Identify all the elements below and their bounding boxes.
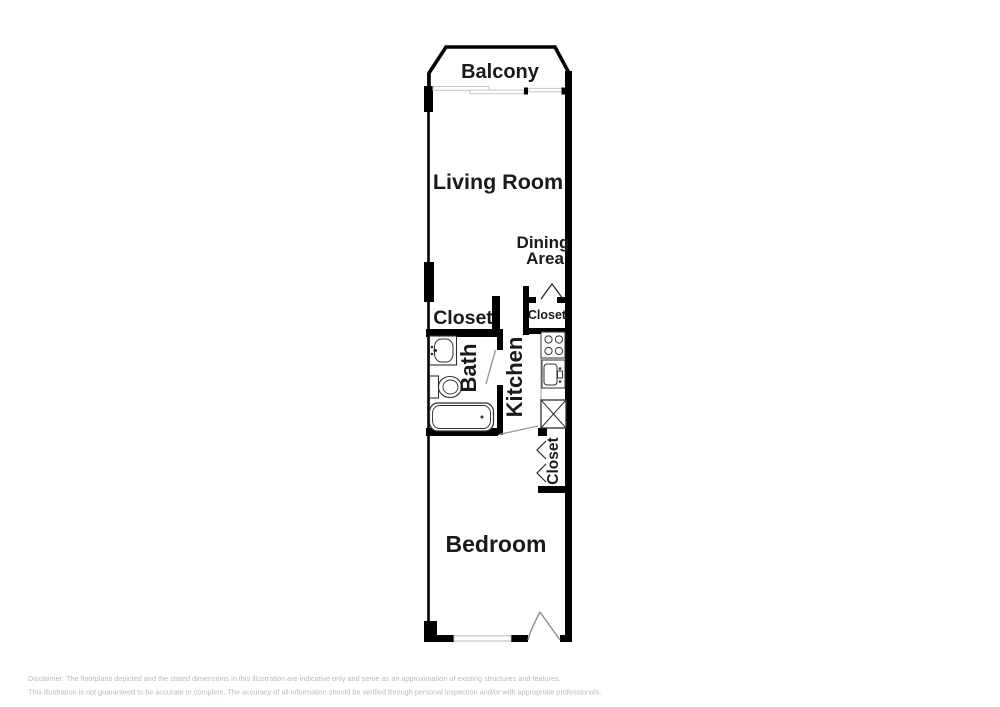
closet-upper-right-label: Closet [528, 308, 567, 322]
right-wall [565, 71, 572, 642]
bottom-wall-mid [511, 635, 528, 642]
vanity-sink [430, 336, 457, 365]
windows [454, 636, 511, 641]
kitchen-door-post [538, 428, 547, 436]
kitchen-label: Kitchen [502, 337, 527, 418]
room-labels: Balcony Living Room Dining Area Closet C… [433, 61, 570, 557]
closet-lower-right-label: Closet [545, 437, 562, 484]
upper-closet-swing-door [541, 284, 563, 299]
closet-upper-left-label: Closet [433, 307, 493, 329]
bedroom-entry-door-arc [528, 612, 540, 640]
living-room-label: Living Room [433, 170, 563, 194]
bedroom-window [454, 636, 511, 641]
hall-swing-door [499, 426, 538, 435]
refrigerator [541, 400, 566, 428]
bedroom-entry-door-leaf [540, 612, 560, 640]
bedroom-label: Bedroom [446, 531, 547, 557]
stove [541, 332, 565, 358]
bottom-wall-left [428, 635, 454, 642]
bath-label: Bath [456, 344, 481, 393]
floorplan-page: Balcony Living Room Dining Area Closet C… [0, 0, 1000, 707]
dining-area-label-line2: Area [526, 249, 564, 268]
disclaimer-line2: This illustration is not guaranteed to b… [28, 688, 601, 697]
disclaimer-line1: Disclaimer: The floorplans depicted and … [28, 674, 561, 683]
kitchen-fixtures [541, 332, 566, 428]
balcony-label: Balcony [461, 61, 540, 83]
kitchen-sink [542, 360, 565, 388]
balcony-sliding-door [433, 87, 566, 95]
bathtub [430, 403, 494, 431]
left-wall-post-mid [424, 262, 434, 302]
bath-swing-door [486, 350, 496, 384]
left-wall-post-top [424, 86, 433, 112]
bottom-wall-right [560, 635, 572, 642]
closet-right-top-stub-right [557, 297, 565, 303]
floorplan-drawing: Balcony Living Room Dining Area Closet C… [0, 0, 1000, 707]
closet-lower-bottom-wall [538, 486, 572, 493]
closet-right-top-stub-left [529, 297, 536, 303]
disclaimer: Disclaimer: The floorplans depicted and … [28, 674, 601, 697]
